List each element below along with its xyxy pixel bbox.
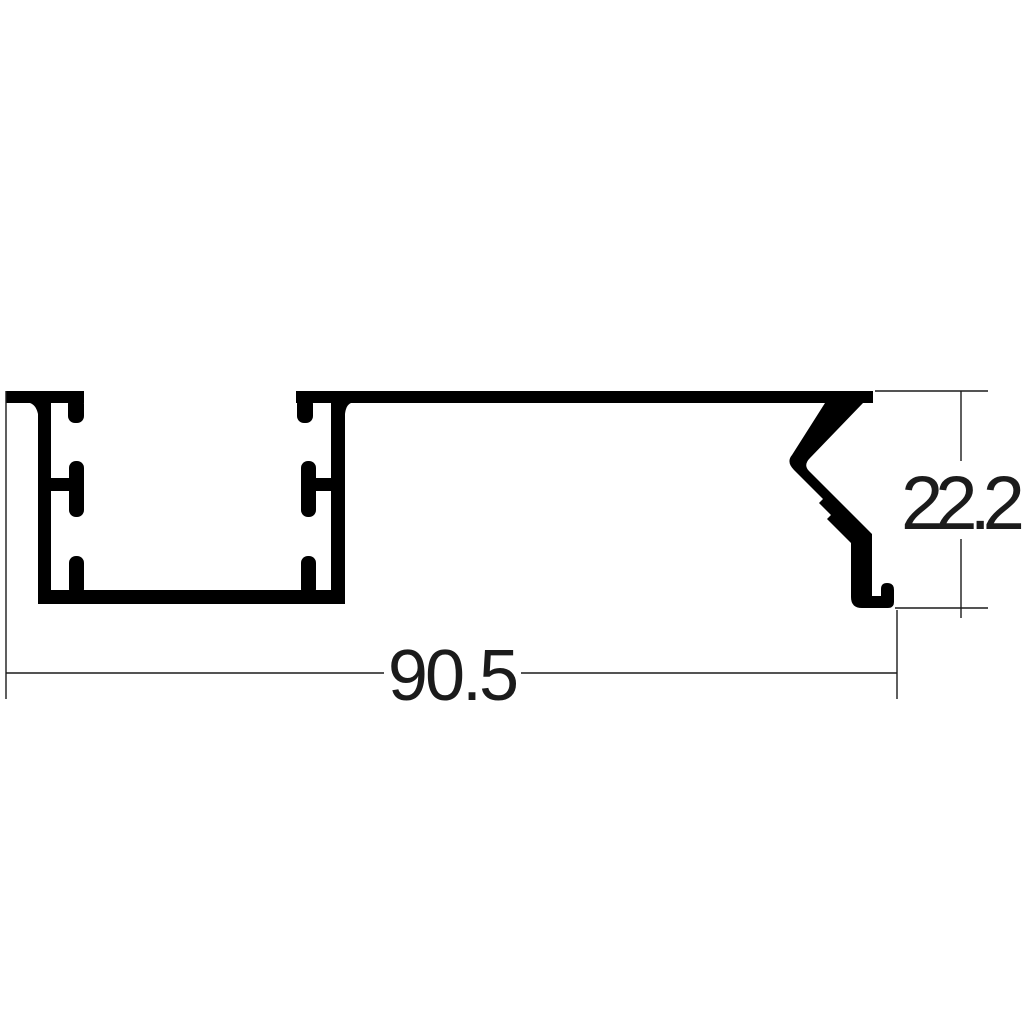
width-dimension-label: 90.5 [388,636,517,716]
profile-left-tslot-bar [69,461,84,517]
profile-left-hanging-stub [68,397,84,423]
profile-middle-tslot-bar [301,461,316,517]
profile-cross-section [6,391,894,608]
profile-top-flange [296,391,873,403]
profile-left-tslot-stem [51,478,71,491]
technical-drawing-page: 90.5 22.2 [0,0,1024,1024]
profile-bottom-flange [38,590,345,604]
profile-middle-tslot-stem [314,478,332,491]
height-dimension-label: 22.2 [901,461,1022,546]
profile-middle-wall [331,391,345,602]
profile-left-wall-fillet [30,403,38,414]
profile-middle-wall-fillet [345,403,351,414]
profile-middle-bottom-stub [301,556,316,596]
drawing-canvas: 90.5 22.2 [0,0,1024,1024]
profile-left-wall [38,391,51,604]
profile-middle-hanging-stub [297,397,313,423]
profile-right-angled-strut [789,403,894,608]
